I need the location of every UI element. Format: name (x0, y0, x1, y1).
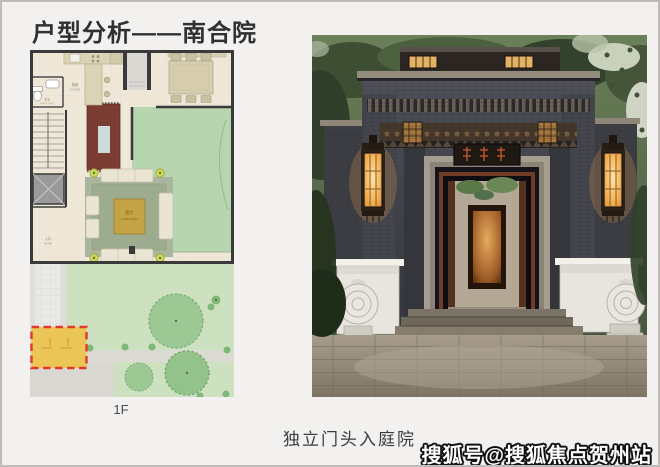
entry-steps (395, 309, 583, 335)
living-room-label: 客厅 (125, 209, 133, 216)
floor-level-label: 1F (98, 402, 144, 417)
foyer-label-en: FOYER (44, 243, 53, 246)
floor-plan-drawing: 厨房 KITCHEN 客卫 GUEST TOILET (30, 50, 234, 397)
foyer-label: 入口 (45, 237, 52, 241)
name-plaque (454, 144, 520, 165)
living-room-label-en: LIVING ROOM (122, 218, 138, 221)
entrance-highlight (32, 327, 87, 368)
guest-toilet-label-en: GUEST TOILET (40, 103, 55, 105)
entrance-photo (312, 35, 647, 397)
coffee-table (114, 199, 145, 234)
slide: 户型分析——南合院 (0, 0, 660, 467)
gatehouse-illustration (312, 35, 647, 397)
entry-vestibule (123, 50, 151, 90)
kitchen-label: 厨房 (72, 82, 79, 87)
photo-caption: 独立门头入庭院 (283, 425, 416, 450)
inner-doorway (468, 205, 506, 289)
water-feature (87, 103, 120, 172)
entrance-opening (404, 148, 570, 328)
dining-table (169, 61, 213, 94)
page-title: 户型分析——南合院 (32, 13, 257, 48)
guest-toilet-label: 客卫 (44, 98, 50, 102)
kitchen-label-en: KITCHEN (70, 89, 81, 92)
stone-pavement (312, 335, 647, 397)
elevator-shaft (33, 174, 64, 204)
watermark: 搜狐号@搜狐焦点贺州站 (421, 439, 652, 467)
floor-plan: 厨房 KITCHEN 客卫 GUEST TOILET (30, 50, 234, 397)
